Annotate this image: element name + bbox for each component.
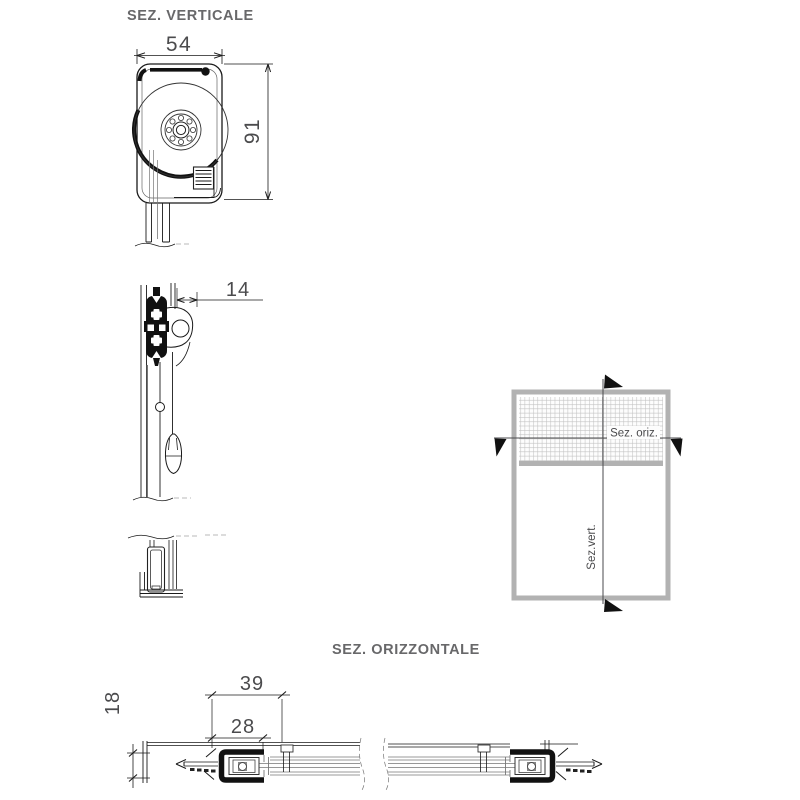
frame-lines-right [388,740,578,775]
cut-direction-flag-right [671,439,683,457]
bottom-bar-profile [148,547,165,592]
horizontal-section-title: SEZ. ORIZZONTALE [332,642,480,658]
vertical-section: SEZ. VERTICALE 54 [127,8,273,597]
vertical-section-title: SEZ. VERTICALE [127,8,254,24]
cut-direction-flag-bottom [604,599,623,612]
bar-profile [144,287,169,366]
dim-box-height: 91 [224,64,273,200]
horizontal-section: SEZ. ORIZZONTALE 18 39 28 [102,642,602,792]
dim-guide-inner: 28 [205,716,271,752]
box-profile-corner [201,67,209,75]
wall-anchor-right [556,748,602,780]
window-schematic: Sez. oriz. Sez.vert. [494,375,683,613]
dim-box-height-label: 91 [241,118,264,144]
dim-box-width-label: 54 [166,33,192,56]
guide-profile-left [222,752,269,780]
wall-anchor-left [176,749,218,780]
bottom-sill-detail [128,535,228,597]
handle-hook [167,307,193,366]
mesh-bottom-bar [519,461,663,466]
dim-box-width: 54 [134,33,225,64]
cut-direction-flag-left [495,439,507,457]
pull-cord [147,352,182,497]
terminal-bar-detail [133,283,193,501]
frame-clip-right [478,745,490,752]
drawing-canvas: SEZ. VERTICALE 54 [0,0,800,800]
cord-stop [156,403,165,412]
technical-drawing-page: SEZ. VERTICALE 54 [0,0,800,800]
dim-bar-offset-label: 14 [226,279,250,301]
dim-bar-offset: 14 [177,279,263,307]
roller-box-drawing [134,64,228,203]
pull-knob [165,434,181,474]
dim-guide-depth-label: 18 [102,691,124,715]
frame-clip-left [281,745,293,752]
break-line [135,243,175,247]
screen-guide-below-box [135,203,192,247]
horizontal-cut-label: Sez. oriz. [610,428,658,440]
cut-direction-flag-top [604,375,623,389]
dim-guide-overall-label: 39 [240,673,264,695]
break-lines-horizontal-section [359,738,388,792]
break-line [133,497,173,501]
vertical-cut-label: Sez.vert. [586,524,598,569]
guide-profile-right [506,752,553,780]
dim-guide-inner-label: 28 [231,716,255,738]
